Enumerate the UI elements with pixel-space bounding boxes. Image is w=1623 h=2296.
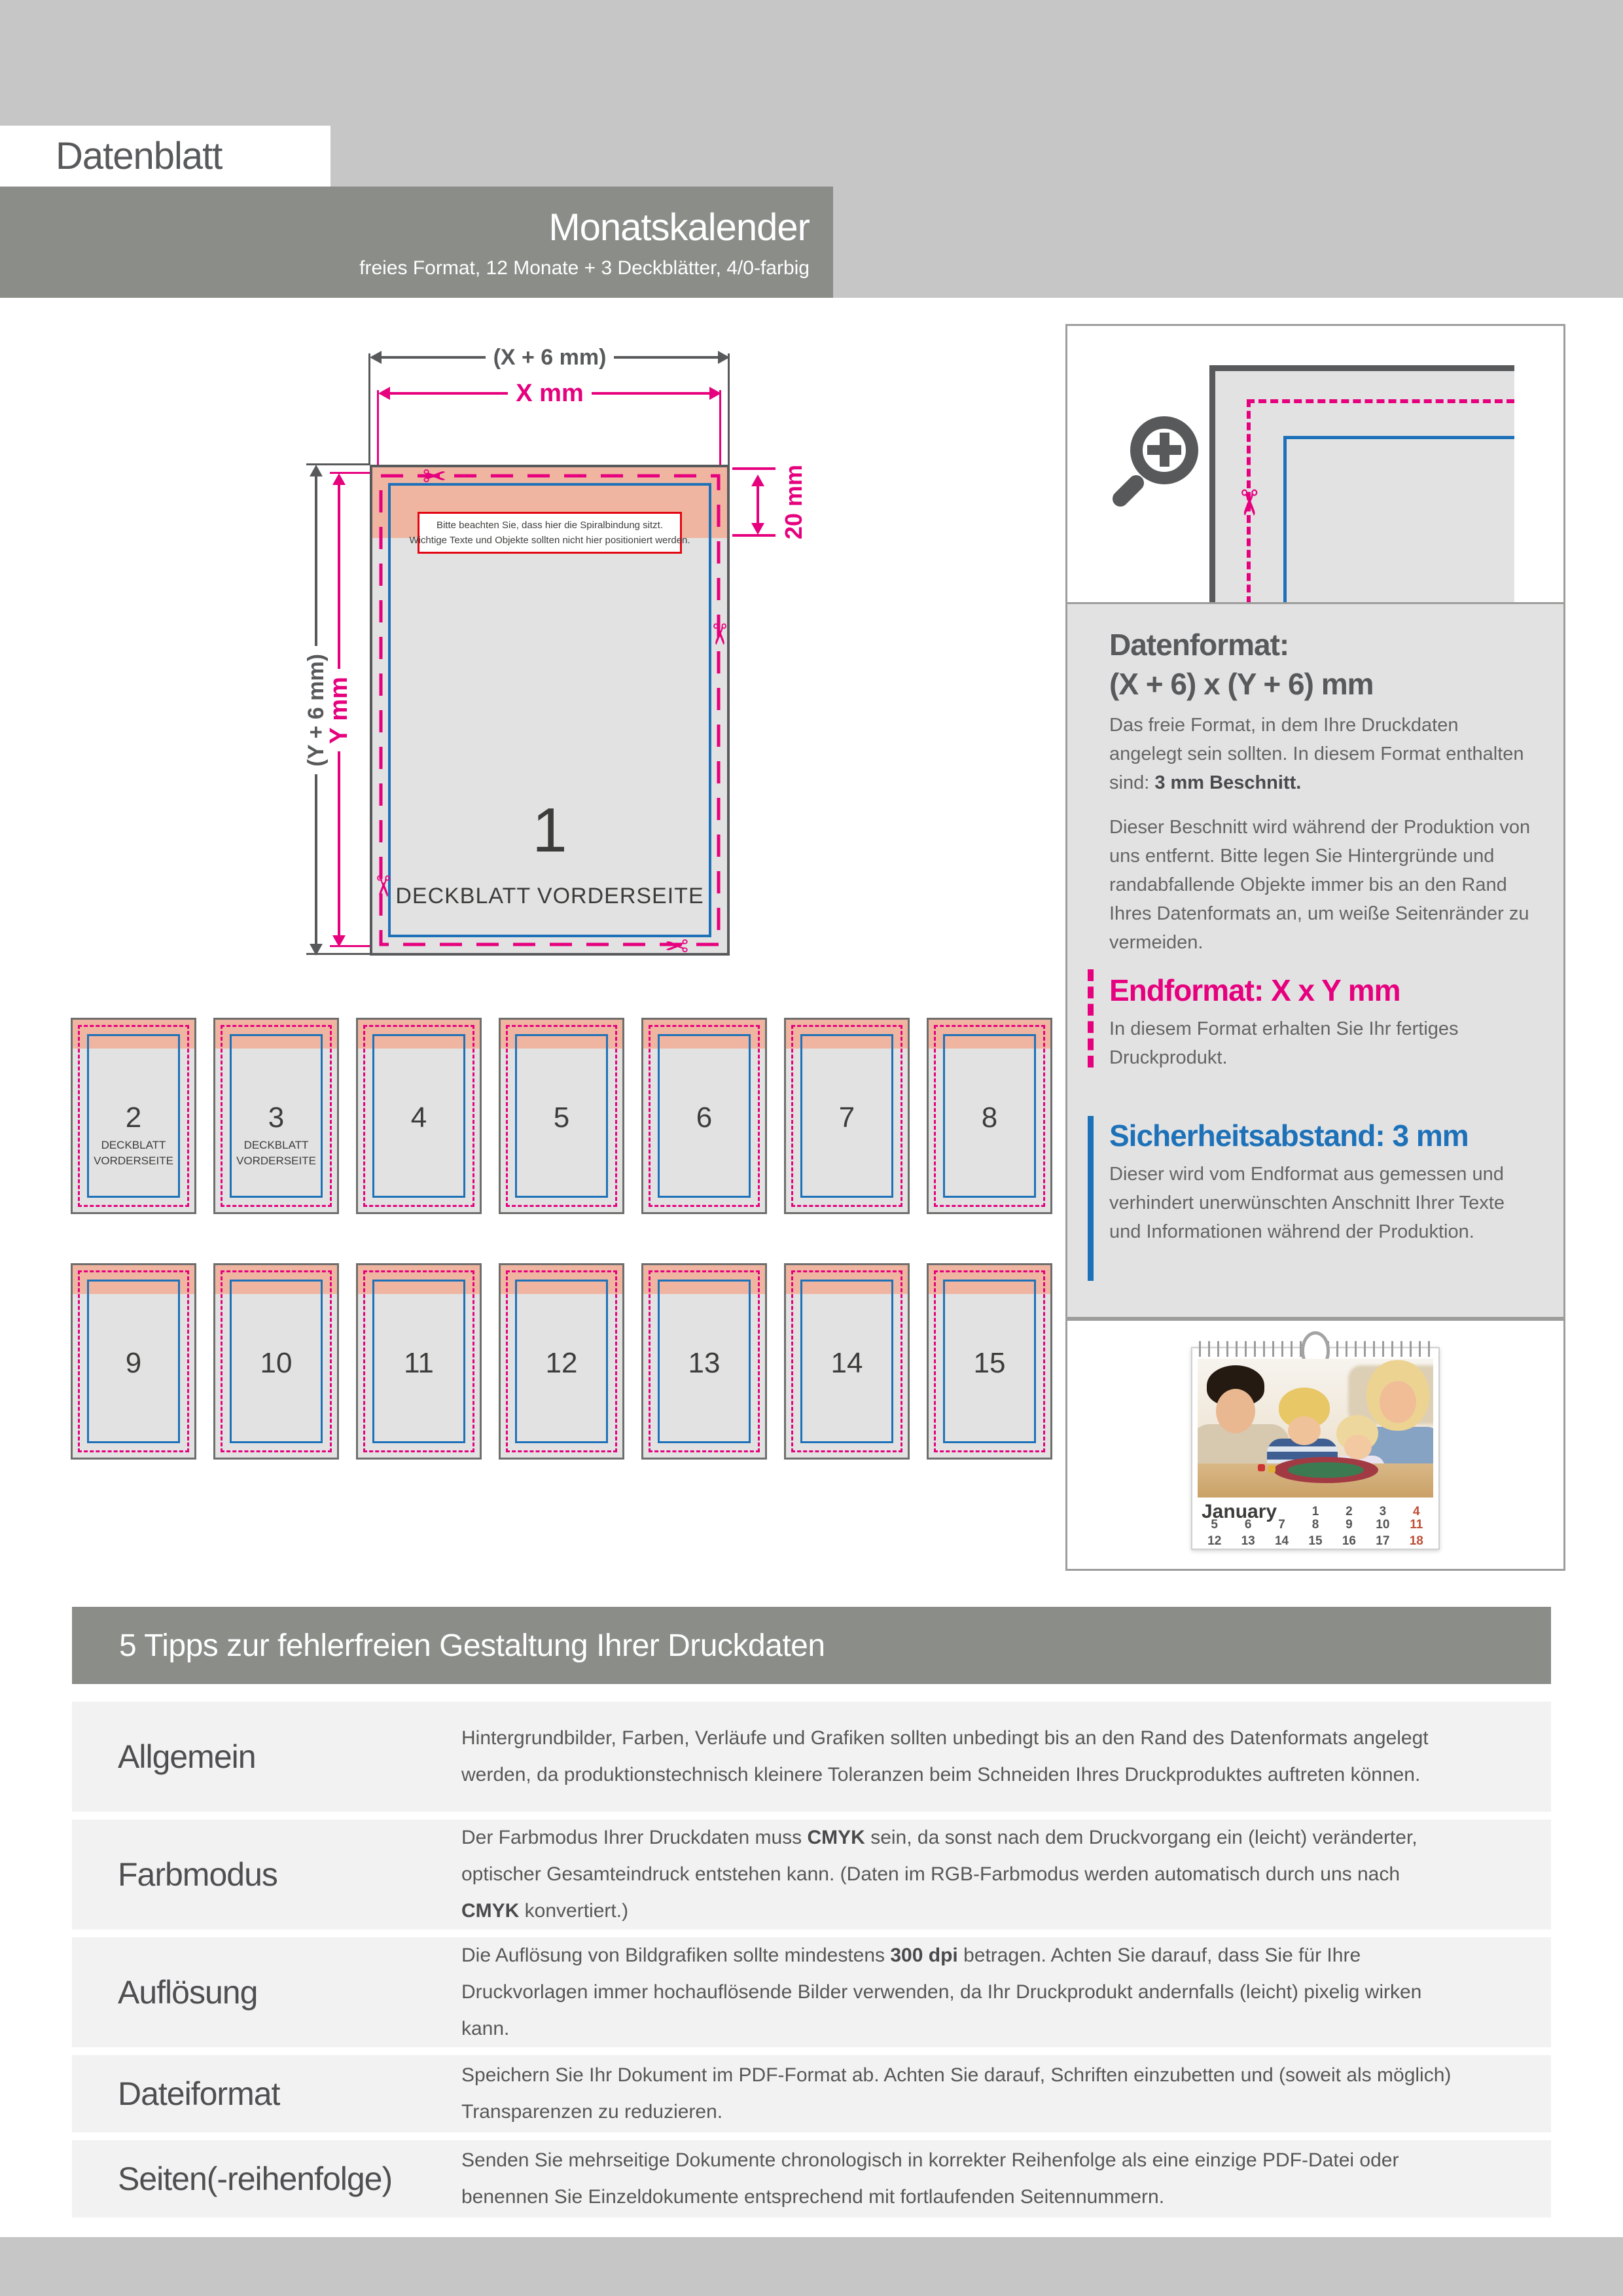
tip-text: Senden Sie mehrseitige Dokumente chronol… <box>461 2142 1453 2215</box>
page-number: 1 <box>372 795 727 867</box>
page-label: DECKBLATT VORDERSEITE <box>73 1138 194 1169</box>
datenformat-title: Datenformat: <box>1109 627 1289 662</box>
page-label: DECKBLATT VORDERSEITE <box>215 1138 337 1169</box>
page-number: 14 <box>786 1347 908 1380</box>
page-tile-4: 4 <box>356 1018 482 1214</box>
calendar-date: 6 <box>1231 1518 1264 1532</box>
footer-band <box>0 2237 1623 2296</box>
calendar-date: 12 <box>1198 1534 1231 1549</box>
page-number: 3 <box>215 1102 337 1134</box>
page-tile-7: 7 <box>784 1018 910 1214</box>
scissors-icon: ✂ <box>368 874 397 899</box>
pages-row-1: 2DECKBLATT VORDERSEITE 3DECKBLATT VORDER… <box>71 1018 1052 1214</box>
zoom-plus-icon <box>1108 411 1213 516</box>
page-number: 9 <box>73 1347 194 1380</box>
page-tile-13: 13 <box>641 1263 767 1460</box>
binding-note-line1: Bitte beachten Sie, dass hier die Spiral… <box>437 518 663 532</box>
tip-row-farbmodus: Farbmodus Der Farbmodus Ihrer Druckdaten… <box>72 1820 1551 1929</box>
page-number: 7 <box>786 1102 908 1134</box>
tip-text: Hintergrundbilder, Farben, Verläufe und … <box>461 1720 1453 1793</box>
calendar-date: 16 <box>1332 1534 1366 1549</box>
dimension-outer-height: (Y + 6 mm) <box>304 465 328 956</box>
scissors-icon: ✂ <box>423 463 447 492</box>
tip-label: Farbmodus <box>118 1820 277 1929</box>
page-tile-8: 8 <box>927 1018 1052 1214</box>
page-tile-2: 2DECKBLATT VORDERSEITE <box>71 1018 196 1214</box>
dimension-outer-width-label: (X + 6 mm) <box>486 345 615 370</box>
dataformat-edge <box>1209 365 1215 604</box>
calendar-dates: January 1 2 3 4 5 6 7 8 9 10 11 12 <box>1198 1500 1433 1545</box>
calendar-date: 3 <box>1366 1505 1399 1519</box>
tip-row-aufloesung: Auflösung Die Auflösung von Bildgrafiken… <box>72 1937 1551 2047</box>
page-number: 10 <box>215 1347 337 1380</box>
tip-row-allgemein: Allgemein Hintergrundbilder, Farben, Ver… <box>72 1702 1551 1812</box>
binding-note-line2: Wichtige Texte und Objekte sollten nicht… <box>409 533 690 547</box>
page-tile-12: 12 <box>499 1263 624 1460</box>
page-tile-10: 10 <box>213 1263 339 1460</box>
calendar-sample: January 1 2 3 4 5 6 7 8 9 10 11 12 <box>1191 1347 1440 1550</box>
scissors-icon: ✂ <box>704 622 733 647</box>
doc-type-label: Datenblatt <box>0 134 222 178</box>
product-title: Monatskalender <box>548 206 810 249</box>
endformat-dash-marker <box>1088 969 1094 1067</box>
calendar-week-row: 12 13 14 15 16 17 18 <box>1198 1534 1433 1549</box>
dataformat-edge <box>1209 365 1514 371</box>
calendar-date: 1 <box>1298 1505 1332 1519</box>
dimension-band-label-wrap: 20 mm <box>780 466 808 538</box>
dimension-band-label: 20 mm <box>780 465 808 539</box>
calendar-date: 15 <box>1298 1534 1332 1549</box>
tip-text: Der Farbmodus Ihrer Druckdaten muss CMYK… <box>461 1820 1453 1929</box>
calendar-date: 9 <box>1332 1518 1366 1532</box>
calendar-date: 4 <box>1400 1505 1433 1519</box>
extension-line <box>728 353 730 465</box>
extension-line <box>368 353 370 465</box>
page-number: 15 <box>929 1347 1050 1380</box>
calendar-date: 11 <box>1400 1518 1433 1532</box>
page-number: 4 <box>358 1102 480 1134</box>
datenformat-formula: (X + 6) x (Y + 6) mm <box>1109 666 1374 702</box>
scissors-icon: ✂ <box>1228 488 1270 517</box>
tip-row-dateiformat: Dateiformat Speichern Sie Ihr Dokument i… <box>72 2055 1551 2132</box>
tip-row-seitenreihenfolge: Seiten(-reihenfolge) Senden Sie mehrseit… <box>72 2140 1551 2217</box>
product-header-bar: Monatskalender freies Format, 12 Monate … <box>0 187 833 298</box>
sicherheitsabstand-text: Dieser wird vom Endformat aus gemessen u… <box>1109 1160 1533 1246</box>
dimension-inner-height: Y mm <box>327 473 351 947</box>
product-sample-box: January 1 2 3 4 5 6 7 8 9 10 11 12 <box>1065 1319 1565 1571</box>
page-label: DECKBLATT VORDERSEITE <box>372 884 727 909</box>
calendar-date: 10 <box>1366 1518 1399 1532</box>
calendar-date: 2 <box>1332 1505 1366 1519</box>
corner-detail-box: ✂ <box>1067 326 1563 604</box>
page-tile-6: 6 <box>641 1018 767 1214</box>
calendar-date: 7 <box>1265 1518 1298 1532</box>
page-tile-14: 14 <box>784 1263 910 1460</box>
binding-note: Bitte beachten Sie, dass hier die Spiral… <box>418 512 682 554</box>
calendar-date: 18 <box>1400 1534 1433 1549</box>
calendar-photo <box>1198 1359 1433 1498</box>
endformat-title: Endformat: X x Y mm <box>1109 973 1400 1008</box>
extension-line <box>719 390 721 465</box>
page-tile-9: 9 <box>71 1263 196 1460</box>
page-tile-3: 3DECKBLATT VORDERSEITE <box>213 1018 339 1214</box>
format-info-panel: ✂ Datenformat: (X + 6) x (Y + 6) mm Das … <box>1065 324 1565 1319</box>
page-tile-15: 15 <box>927 1263 1052 1460</box>
page-number: 8 <box>929 1102 1050 1134</box>
tip-label: Auflösung <box>118 1937 257 2047</box>
tip-label: Dateiformat <box>118 2055 279 2132</box>
scissors-icon: ✂ <box>665 930 689 959</box>
band-tick <box>732 467 776 470</box>
dimension-outer-width: (X + 6 mm) <box>370 346 730 369</box>
tip-text: Speichern Sie Ihr Dokument im PDF-Format… <box>461 2057 1453 2130</box>
calendar-date: 13 <box>1231 1534 1264 1549</box>
extension-line <box>377 390 379 465</box>
datenformat-paragraph-2: Dieser Beschnitt wird während der Produk… <box>1109 813 1533 957</box>
tips-title: 5 Tipps zur fehlerfreien Gestaltung Ihre… <box>72 1628 825 1664</box>
page-number: 11 <box>358 1347 480 1380</box>
pages-row-2: 9 10 11 12 13 14 15 <box>71 1263 1052 1460</box>
dimension-inner-width-label: X mm <box>508 380 591 408</box>
extension-line <box>306 463 370 465</box>
datasheet-page: Datenblatt Monatskalender freies Format,… <box>0 0 1623 2296</box>
calendar-date: 5 <box>1198 1518 1231 1532</box>
page-tile-11: 11 <box>356 1263 482 1460</box>
calendar-date: 17 <box>1366 1534 1399 1549</box>
tips-header-bar: 5 Tipps zur fehlerfreien Gestaltung Ihre… <box>72 1607 1551 1684</box>
sicherheitsabstand-title: Sicherheitsabstand: 3 mm <box>1109 1118 1469 1153</box>
dimension-inner-height-label: Y mm <box>325 669 353 752</box>
calendar-date: 8 <box>1298 1518 1332 1532</box>
sicherheitsabstand-bar-marker <box>1088 1116 1094 1281</box>
cover-page-diagram: Bitte beachten Sie, dass hier die Spiral… <box>370 465 730 956</box>
extension-line <box>306 953 370 955</box>
dimension-inner-width: X mm <box>378 382 721 405</box>
safety-line <box>1283 436 1514 604</box>
endformat-text: In diesem Format erhalten Sie Ihr fertig… <box>1109 1014 1533 1072</box>
page-number: 13 <box>643 1347 765 1380</box>
calendar-week-row: January 1 2 3 4 <box>1198 1501 1433 1516</box>
tip-text: Die Auflösung von Bildgrafiken sollte mi… <box>461 1937 1453 2047</box>
datenformat-paragraph-1: Das freie Format, in dem Ihre Druckdaten… <box>1109 711 1533 797</box>
page-tile-5: 5 <box>499 1018 624 1214</box>
tip-label: Allgemein <box>118 1702 256 1812</box>
page-number: 2 <box>73 1102 194 1134</box>
doc-type-box: Datenblatt <box>0 126 330 187</box>
page-number: 12 <box>501 1347 622 1380</box>
page-number: 6 <box>643 1102 765 1134</box>
dimension-band-height <box>746 475 770 535</box>
calendar-week-row: 5 6 7 8 9 10 11 <box>1198 1517 1433 1533</box>
page-number: 5 <box>501 1102 622 1134</box>
product-subtitle: freies Format, 12 Monate + 3 Deckblätter… <box>359 257 810 279</box>
calendar-date: 14 <box>1265 1534 1298 1549</box>
tip-label: Seiten(-reihenfolge) <box>118 2140 392 2217</box>
